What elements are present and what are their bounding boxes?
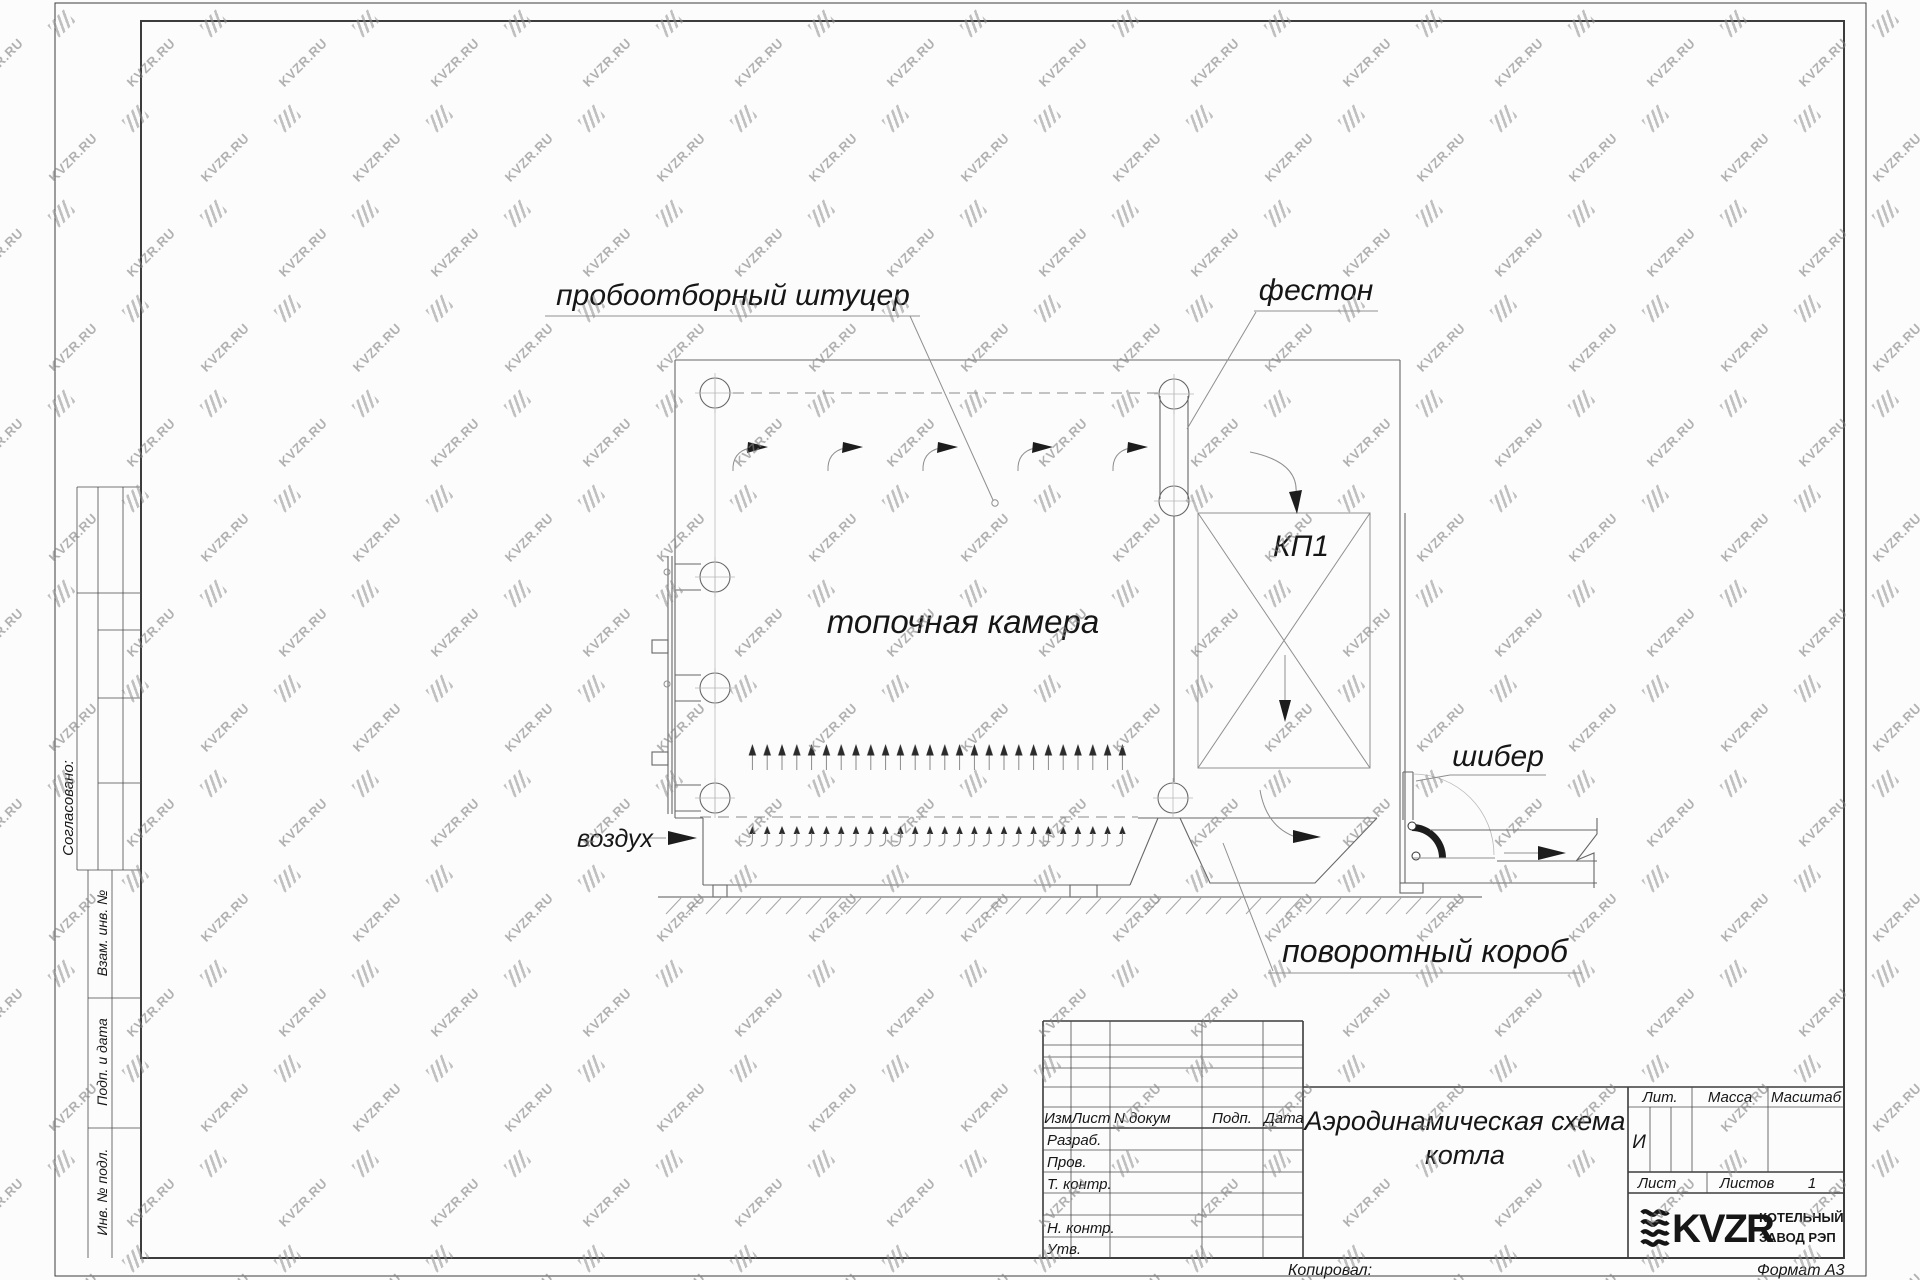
row-t-control: Т. контр. <box>1047 1176 1112 1193</box>
festoon-tube <box>1160 380 1188 782</box>
ground-hatch-stroke <box>1286 898 1301 914</box>
ground-hatch-stroke <box>926 898 941 914</box>
row-approved: Утв. <box>1046 1241 1081 1258</box>
ground-hatch-stroke <box>846 898 861 914</box>
lit-value: И <box>1632 1132 1646 1153</box>
ground-hatch-stroke <box>966 898 981 914</box>
drawing-sheet: Согласовано: Взам. инв. № Подп. и дата И… <box>0 0 1920 1280</box>
air-arrow-icon <box>668 831 697 845</box>
title-block: Изм Лист N докум Подп. Дата Разраб. Пров… <box>1043 1021 1845 1279</box>
air-label: воздух <box>577 825 655 853</box>
left-margin-boxes: Согласовано: Взам. инв. № Подп. и дата И… <box>60 487 141 1258</box>
grate-spikes <box>745 744 1130 770</box>
turning-duct-label: поворотный короб <box>1282 933 1569 969</box>
ground-hatch-stroke <box>1346 898 1361 914</box>
ground-hatch-stroke <box>1266 898 1281 914</box>
ground-hatch-stroke <box>686 898 701 914</box>
ground-hatch-stroke <box>1446 898 1461 914</box>
row-developed: Разраб. <box>1047 1132 1101 1149</box>
ground-hatch-stroke <box>866 898 881 914</box>
ground-hatch-stroke <box>986 898 1001 914</box>
ground-hatch-stroke <box>1186 898 1201 914</box>
ground-hatch-stroke <box>806 898 821 914</box>
replacement-inv-label: Взам. инв. № <box>94 890 110 977</box>
boiler-scheme-svg: Согласовано: Взам. инв. № Подп. и дата И… <box>0 0 1920 1280</box>
kp1-label: КП1 <box>1273 530 1329 563</box>
ground-hatch-stroke <box>1226 898 1241 914</box>
boiler-drawing: пробоотборный штуцер фестон топочная кам… <box>545 274 1597 973</box>
ground-hatch-stroke <box>886 898 901 914</box>
ground-hatch-stroke <box>1046 898 1061 914</box>
sheets-label: Листов <box>1719 1175 1775 1192</box>
ground-hatch-stroke <box>1246 898 1261 914</box>
burner-assembly <box>652 556 701 814</box>
ground-hatch-stroke <box>1126 898 1141 914</box>
ground-hatch-stroke <box>766 898 781 914</box>
ground-hatch-stroke <box>666 898 681 914</box>
doc-title-line2: котла <box>1425 1140 1505 1170</box>
damper-assembly <box>1403 772 1494 860</box>
ground-hatch-stroke <box>1146 898 1161 914</box>
scale-label: Масштаб <box>1771 1089 1842 1106</box>
furnace-chamber-label: топочная камера <box>827 603 1100 640</box>
ground-hatch-stroke <box>1366 898 1381 914</box>
kvzr-logo-icon <box>1642 1211 1668 1244</box>
sheet-label: Лист <box>1637 1175 1677 1192</box>
company-line2: ЗАВОД РЭП <box>1759 1230 1836 1245</box>
sign-date-label: Подп. и дата <box>94 1018 110 1106</box>
festoon-label: фестон <box>1259 274 1374 307</box>
ground-hatch-stroke <box>1006 898 1021 914</box>
ground-hatch-stroke <box>1066 898 1081 914</box>
sampling-port-point <box>992 500 998 506</box>
sheets-value: 1 <box>1808 1175 1816 1192</box>
col-doc: N докум <box>1114 1110 1171 1127</box>
format-label: Формат А3 <box>1757 1262 1845 1279</box>
ground-hatch-stroke <box>826 898 841 914</box>
doc-title-line1: Аэродинамическая схема <box>1303 1106 1626 1136</box>
ground-hatch-stroke <box>1426 898 1441 914</box>
company-line1: КОТЕЛЬНЫЙ <box>1759 1210 1844 1225</box>
sampling-port-label: пробоотборный штуцер <box>556 279 910 312</box>
ground-hatch-stroke <box>1306 898 1321 914</box>
callout-leaders <box>545 311 1582 973</box>
ground-hatch-stroke <box>1386 898 1401 914</box>
col-sign: Подп. <box>1212 1110 1252 1127</box>
kp1-entry-arrow <box>1250 452 1296 494</box>
damper-label: шибер <box>1452 740 1544 773</box>
ground-hatch-stroke <box>906 898 921 914</box>
ground-hatch-stroke <box>706 898 721 914</box>
air-hooks <box>745 826 1130 848</box>
col-izm: Изм <box>1044 1110 1072 1127</box>
exit-duct <box>1400 818 1597 888</box>
ground-hatch-stroke <box>1086 898 1101 914</box>
lit-label: Лит. <box>1641 1089 1677 1106</box>
ground-hatch-stroke <box>1406 898 1421 914</box>
duct-break-line <box>1577 818 1597 888</box>
inv-orig-label: Инв. № подл. <box>94 1149 110 1236</box>
ground-hatch-stroke <box>726 898 741 914</box>
ground-hatch-stroke <box>1166 898 1181 914</box>
ground-hatch-stroke <box>946 898 961 914</box>
ground-hatch-stroke <box>786 898 801 914</box>
ground-hatch-stroke <box>1206 898 1221 914</box>
col-list: Лист <box>1071 1110 1111 1127</box>
ground-hatch-stroke <box>746 898 761 914</box>
col-date: Дата <box>1262 1110 1304 1127</box>
copied-by-label: Копировал: <box>1288 1262 1372 1279</box>
row-checked: Пров. <box>1047 1154 1087 1171</box>
turning-duct-hopper <box>1180 818 1377 883</box>
ground-hatch-stroke <box>1026 898 1041 914</box>
turning-duct-arrow <box>1260 790 1293 836</box>
ground-hatching <box>666 898 1461 914</box>
mass-label: Масса <box>1708 1089 1752 1106</box>
row-n-control: Н. контр. <box>1047 1220 1115 1237</box>
ground-hatch-stroke <box>1326 898 1341 914</box>
ground-hatch-stroke <box>1106 898 1121 914</box>
agreed-label: Согласовано: <box>60 760 77 856</box>
